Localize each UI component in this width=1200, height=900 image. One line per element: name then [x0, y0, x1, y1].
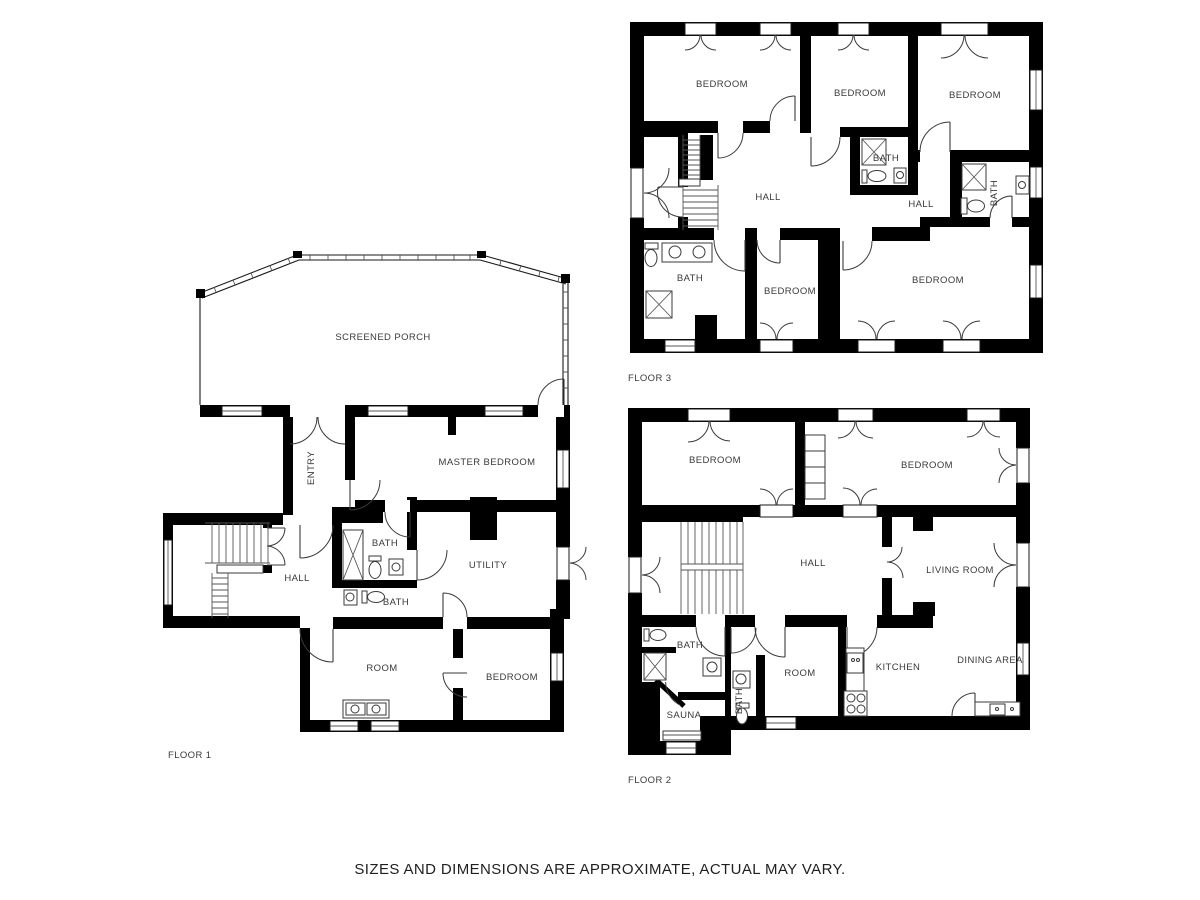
room-label-f1-utility: UTILITY [469, 560, 507, 571]
room-label-f1-screened-porch: SCREENED PORCH [335, 332, 430, 343]
room-label-f2-room: ROOM [784, 668, 815, 679]
floor2-label: FLOOR 2 [628, 775, 671, 786]
room-label-f2-kitchen: KITCHEN [876, 662, 921, 673]
room-label-f1-bedroom: BEDROOM [486, 672, 538, 683]
room-label-f1-bath-upper: BATH [372, 538, 398, 549]
room-label-f3-bedroom-bottom-right: BEDROOM [912, 275, 964, 286]
room-label-f3-bath-right: BATH [989, 180, 1000, 206]
room-label-f2-bath: BATH [677, 640, 703, 651]
floor1-label: FLOOR 1 [168, 750, 211, 761]
floor1-doors [267, 379, 586, 697]
room-label-f3-hall-right: HALL [908, 199, 933, 210]
room-label-f3-bedroom-top-right: BEDROOM [949, 90, 1001, 101]
room-label-f3-bath-mid: BATH [873, 153, 899, 164]
floor1-plan: SCREENED PORCH ENTRY MASTER BEDROOM HALL… [163, 251, 586, 761]
floor2-stairs [681, 522, 743, 614]
room-label-f2-dining-area: DINING AREA [957, 655, 1023, 666]
room-label-f3-bedroom-bottom-mid: BEDROOM [764, 286, 816, 297]
room-label-f3-bath-bottom: BATH [677, 273, 703, 284]
room-label-f2-living-room: LIVING ROOM [926, 565, 994, 576]
room-label-f2-hall: HALL [800, 558, 825, 569]
disclaimer-text: SIZES AND DIMENSIONS ARE APPROXIMATE, AC… [354, 861, 845, 878]
room-label-f1-hall: HALL [284, 573, 309, 584]
room-label-f2-bath-small: BATH [734, 688, 745, 714]
floor1-porch [196, 251, 570, 405]
floor-plan-canvas: BEDROOM BEDROOM BEDROOM HALL BATH HALL B… [0, 0, 1200, 900]
floor-plan-sheet: BEDROOM BEDROOM BEDROOM HALL BATH HALL B… [0, 0, 1200, 900]
floor3-label: FLOOR 3 [628, 373, 671, 384]
room-label-f1-room: ROOM [366, 663, 397, 674]
room-label-f1-master-bedroom: MASTER BEDROOM [439, 457, 536, 468]
floor2-plan: BEDROOM BEDROOM HALL LIVING ROOM BATH SA… [628, 408, 1030, 786]
room-label-f3-bedroom-top-left: BEDROOM [696, 79, 748, 90]
floor1-stairs [205, 523, 270, 618]
floor3-plan: BEDROOM BEDROOM BEDROOM HALL BATH HALL B… [628, 22, 1043, 384]
room-label-f1-bath-lower: BATH [383, 597, 409, 608]
room-label-f2-bedroom-right: BEDROOM [901, 460, 953, 471]
room-label-f2-bedroom-left: BEDROOM [689, 455, 741, 466]
room-label-f2-sauna: SAUNA [667, 710, 702, 721]
room-label-f3-hall-left: HALL [755, 192, 780, 203]
room-label-f3-bedroom-top-mid: BEDROOM [834, 88, 886, 99]
room-label-f1-entry: ENTRY [306, 451, 317, 485]
